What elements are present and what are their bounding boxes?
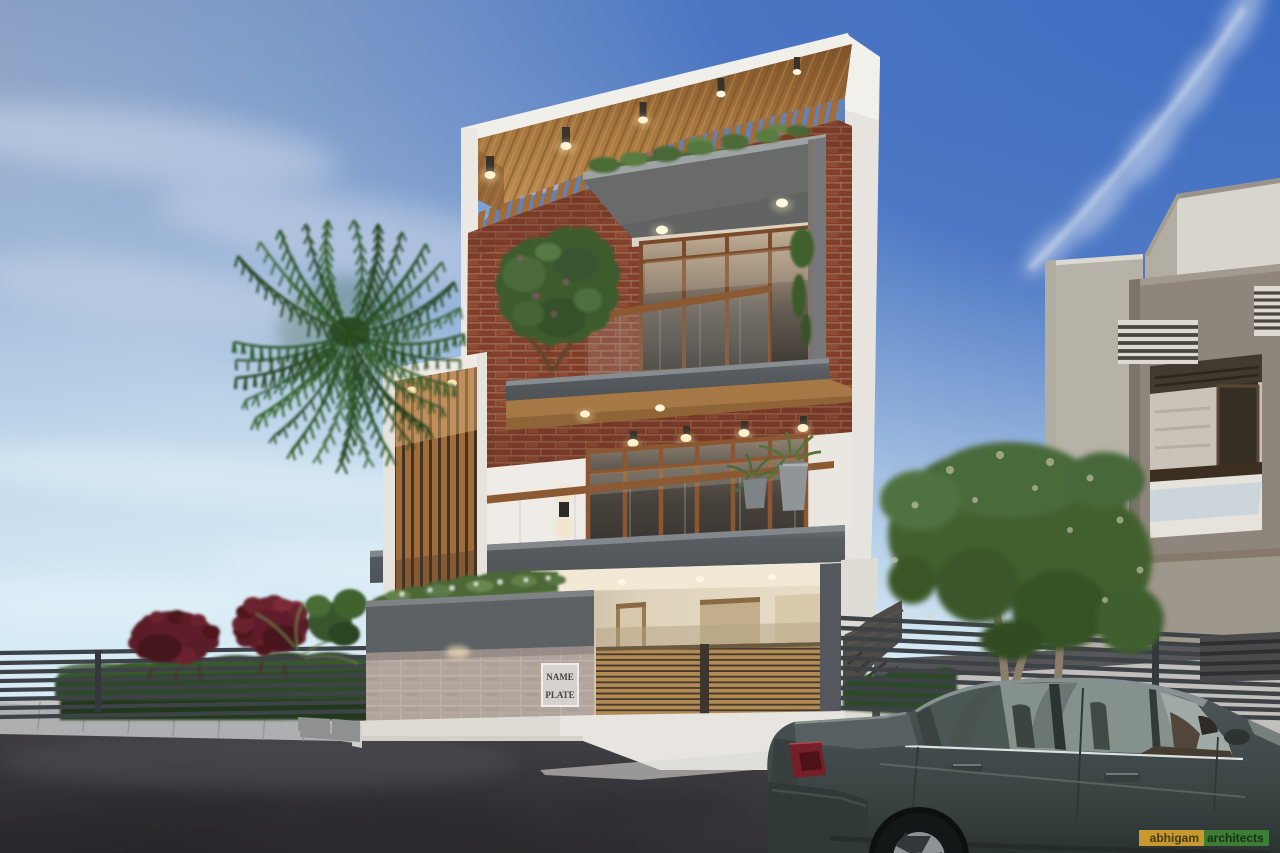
svg-text:abhigam: abhigam [1150, 831, 1199, 845]
svg-text:PLATE: PLATE [545, 690, 574, 700]
svg-text:architects: architects [1207, 831, 1264, 845]
svg-text:NAME: NAME [546, 672, 574, 682]
